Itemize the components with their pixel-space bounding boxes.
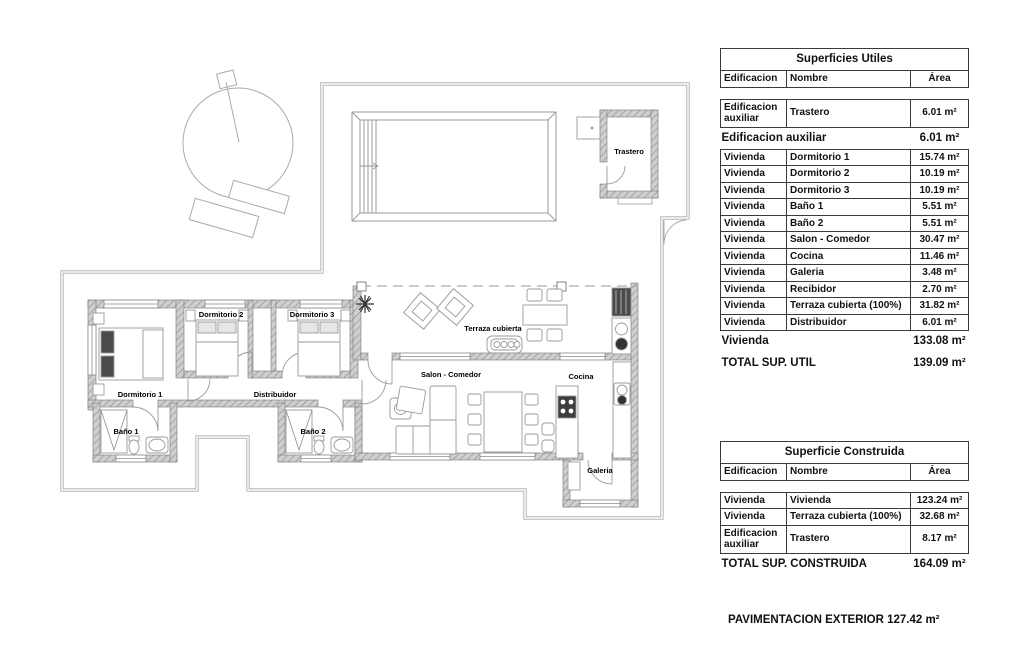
window <box>560 353 605 360</box>
table-row: Vivienda Cocina 11.46 m² <box>721 248 969 265</box>
chair <box>547 289 562 301</box>
label-terraza: Terraza cubierta <box>464 324 522 333</box>
table-row: Vivienda Galeria 3.48 m² <box>721 265 969 282</box>
trastero-door-arc <box>607 166 625 184</box>
door-arc <box>362 380 386 404</box>
col-header-edificacion: Edificacion <box>721 71 787 88</box>
outdoor-table <box>523 289 567 341</box>
table-row: Vivienda Distribuidor 6.01 m² <box>721 314 969 331</box>
stool <box>542 423 554 435</box>
chair <box>525 414 538 425</box>
lounge-chair <box>404 293 441 330</box>
label-dormitorio-2: Dormitorio 2 <box>199 310 244 319</box>
label-bano-1: Baño 1 <box>113 427 138 436</box>
bbq <box>612 288 631 354</box>
table-row: Vivienda Dormitorio 1 15.74 m² <box>721 149 969 166</box>
table-spacer <box>720 481 968 492</box>
table-spacer <box>720 88 968 99</box>
bed-dormitorio-2 <box>186 310 248 376</box>
bed-dormitorio-3 <box>288 310 350 376</box>
bed-dormitorio-1 <box>93 313 163 395</box>
galeria-appliance <box>568 462 580 490</box>
gate-door-arc <box>664 220 686 244</box>
subtotal-row: Edificacion auxiliar 6.01 m² <box>721 127 969 149</box>
chair <box>468 394 481 405</box>
kitchen-counter <box>613 362 631 458</box>
chair <box>527 289 542 301</box>
lounge-chair <box>437 289 474 326</box>
garden-tree <box>183 70 293 238</box>
trastero-step <box>618 198 652 204</box>
table-row: Vivienda Recibidor 2.70 m² <box>721 281 969 298</box>
window <box>88 325 96 375</box>
chair <box>525 394 538 405</box>
total-row: TOTAL SUP. CONSTRUIDA 164.09 m² <box>721 553 969 575</box>
label-dormitorio-3: Dormitorio 3 <box>290 310 335 319</box>
window <box>301 455 331 462</box>
door-arc <box>188 379 210 401</box>
window <box>116 455 146 462</box>
nightstand <box>341 310 350 321</box>
dining-table <box>468 392 538 452</box>
superficie-construida-table: Superficie Construida Edificacion Nombre… <box>720 441 968 575</box>
nightstand <box>186 310 195 321</box>
table-row: Vivienda Terraza cubierta (100%) 32.68 m… <box>721 509 969 526</box>
kitchen-sink <box>614 383 630 405</box>
ac-unit <box>577 117 600 139</box>
window <box>400 353 470 360</box>
col-header-nombre: Nombre <box>787 464 911 481</box>
label-distribuidor: Distribuidor <box>254 390 297 399</box>
sofa <box>396 386 456 454</box>
total-row: TOTAL SUP. UTIL 139.09 m² <box>721 353 969 374</box>
nightstand <box>93 313 104 324</box>
table-row: Vivienda Terraza cubierta (100%) 31.82 m… <box>721 298 969 315</box>
furniture-bedrooms <box>93 310 350 395</box>
swimming-pool <box>352 112 556 221</box>
label-bano-2: Baño 2 <box>300 427 325 436</box>
table-row: Edificacion auxiliar Trastero 8.17 m² <box>721 525 969 553</box>
utiles-title: Superficies Utiles <box>721 49 969 71</box>
pillar <box>357 282 366 291</box>
label-galeria: Galeria <box>587 466 613 475</box>
col-header-edificacion: Edificacion <box>721 464 787 481</box>
stool <box>542 440 554 452</box>
toilet <box>314 436 324 454</box>
nightstand <box>93 384 104 395</box>
table-row: Vivienda Baño 2 5.51 m² <box>721 215 969 232</box>
planter <box>229 180 290 213</box>
terraza-roof-edge <box>357 282 638 291</box>
cooktop <box>558 396 576 418</box>
table-row: Vivienda Vivienda 123.24 m² <box>721 492 969 509</box>
door-arc <box>368 360 392 384</box>
chair <box>527 329 542 341</box>
sink <box>331 437 353 453</box>
pavimentacion-note: PAVIMENTACION EXTERIOR 127.42 m² <box>728 614 940 626</box>
label-cocina: Cocina <box>568 372 594 381</box>
label-dormitorio-1: Dormitorio 1 <box>118 390 163 399</box>
grill-tray <box>487 336 522 353</box>
table-row: Vivienda Baño 1 5.51 m² <box>721 199 969 216</box>
chair <box>525 434 538 445</box>
window <box>104 300 158 308</box>
furniture-terraza <box>404 288 631 354</box>
chair <box>468 414 481 425</box>
label-salon: Salon - Comedor <box>421 370 481 379</box>
trastero-building: Trastero <box>577 110 658 204</box>
table-row: Vivienda Dormitorio 3 10.19 m² <box>721 182 969 199</box>
construida-title: Superficie Construida <box>721 442 969 464</box>
page: { "colors": { "wall_fill": "#cfcfcf", "w… <box>0 0 1020 670</box>
col-header-nombre: Nombre <box>787 71 911 88</box>
kitchen-island <box>542 386 578 458</box>
window <box>480 453 535 460</box>
window <box>580 500 620 507</box>
sink <box>146 437 168 453</box>
chair <box>468 434 481 445</box>
label-trastero: Trastero <box>614 147 644 156</box>
table-row: Vivienda Salon - Comedor 30.47 m² <box>721 232 969 249</box>
toilet <box>129 436 139 454</box>
table-row: Edificacion auxiliar Trastero 6.01 m² <box>721 99 969 127</box>
col-header-area: Área <box>911 71 969 88</box>
floor-plan: Trastero <box>0 0 700 670</box>
table-row: Vivienda Dormitorio 2 10.19 m² <box>721 166 969 183</box>
window <box>300 300 342 308</box>
window <box>205 300 245 308</box>
planter <box>189 198 259 237</box>
superficies-utiles-table: Superficies Utiles Edificacion Nombre Ár… <box>720 48 968 374</box>
col-header-area: Área <box>911 464 969 481</box>
subtotal-row: Vivienda 133.08 m² <box>721 331 969 353</box>
chair <box>547 329 562 341</box>
